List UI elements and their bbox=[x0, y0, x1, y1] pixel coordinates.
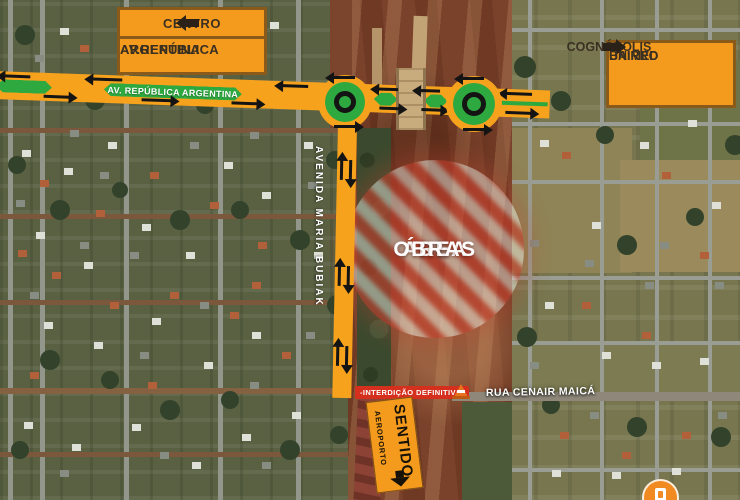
arrow-left-icon bbox=[462, 77, 484, 80]
arrow-down-icon bbox=[345, 346, 348, 366]
street bbox=[512, 28, 740, 32]
street bbox=[0, 388, 355, 394]
arrow-down-icon bbox=[389, 469, 411, 487]
arrow-right-icon bbox=[334, 125, 356, 128]
street bbox=[528, 0, 532, 500]
street bbox=[512, 276, 740, 280]
cone-base bbox=[452, 396, 470, 399]
work-zone-line3: OBRAS bbox=[393, 233, 476, 266]
traffic-cone-icon bbox=[452, 381, 470, 400]
street bbox=[512, 468, 740, 472]
rua-cenair-maica-label: RUA CENAIR MAICÁ bbox=[486, 385, 606, 399]
arrow-left-icon bbox=[186, 19, 199, 27]
construction-detour-map: ÁREA DE OBRAS AV. REPÚBLICA ARGENTINA bbox=[0, 0, 740, 500]
street bbox=[0, 214, 352, 219]
street bbox=[0, 452, 352, 457]
arrow-left-icon bbox=[282, 84, 308, 88]
arrow-down-icon bbox=[349, 160, 352, 180]
cone-stripe bbox=[457, 390, 465, 393]
field-patch bbox=[462, 402, 512, 500]
roundabout-left bbox=[318, 75, 372, 129]
arrow-right-icon bbox=[231, 101, 257, 105]
arrow-right-icon bbox=[505, 111, 531, 115]
roundabout-right bbox=[446, 76, 502, 132]
sign-centro-row1: CENTRO bbox=[120, 10, 264, 39]
logo-glyph bbox=[655, 488, 666, 500]
arrow-left-icon bbox=[333, 76, 355, 79]
arrow-right-icon bbox=[379, 107, 399, 111]
work-zone-label: ÁREA DE OBRAS bbox=[346, 160, 524, 338]
street bbox=[512, 180, 740, 184]
arrow-left-icon bbox=[378, 87, 398, 91]
sign-centro: CENTRO AV.REPÚBLICA ARGENTINA bbox=[117, 7, 267, 75]
arrow-up-icon bbox=[336, 346, 339, 366]
arrow-right-icon bbox=[44, 95, 70, 99]
arrow-left-icon bbox=[506, 92, 532, 96]
sign-sentido-secondary: AEROPORTO bbox=[373, 410, 389, 466]
street bbox=[296, 0, 301, 500]
street bbox=[600, 0, 604, 500]
field-patch bbox=[620, 160, 740, 272]
roundabout-center-ring bbox=[334, 91, 356, 113]
arrow-head bbox=[390, 476, 411, 487]
arrow-up-icon bbox=[338, 266, 341, 286]
street bbox=[512, 122, 740, 126]
avenida-maria-bubiak-label: AVENIDA MARIA BUBIAK bbox=[313, 146, 324, 346]
sign-sentido-primary: SENTIDO bbox=[390, 403, 416, 478]
sign-bairro-cognopolis: BAIRRO COGNÓPOLIS UNIMED bbox=[606, 40, 736, 108]
arrow-right-icon bbox=[142, 98, 172, 102]
street bbox=[218, 0, 223, 500]
street bbox=[512, 341, 740, 345]
arrow-right-icon bbox=[421, 108, 441, 112]
street bbox=[0, 300, 352, 305]
arrow-down-icon bbox=[347, 266, 350, 286]
sign-centro-road-line2: ARGENTINA bbox=[120, 42, 200, 57]
arrow-left-icon bbox=[420, 89, 440, 93]
sign-bairro-line3: UNIMED bbox=[609, 47, 658, 66]
arrow-left-icon bbox=[4, 74, 30, 78]
arrow-up-icon bbox=[340, 160, 343, 180]
street bbox=[0, 128, 352, 133]
roundabout-center-ring bbox=[462, 92, 486, 116]
arrow-left-icon bbox=[92, 77, 122, 81]
arrow-right-icon bbox=[463, 128, 485, 131]
